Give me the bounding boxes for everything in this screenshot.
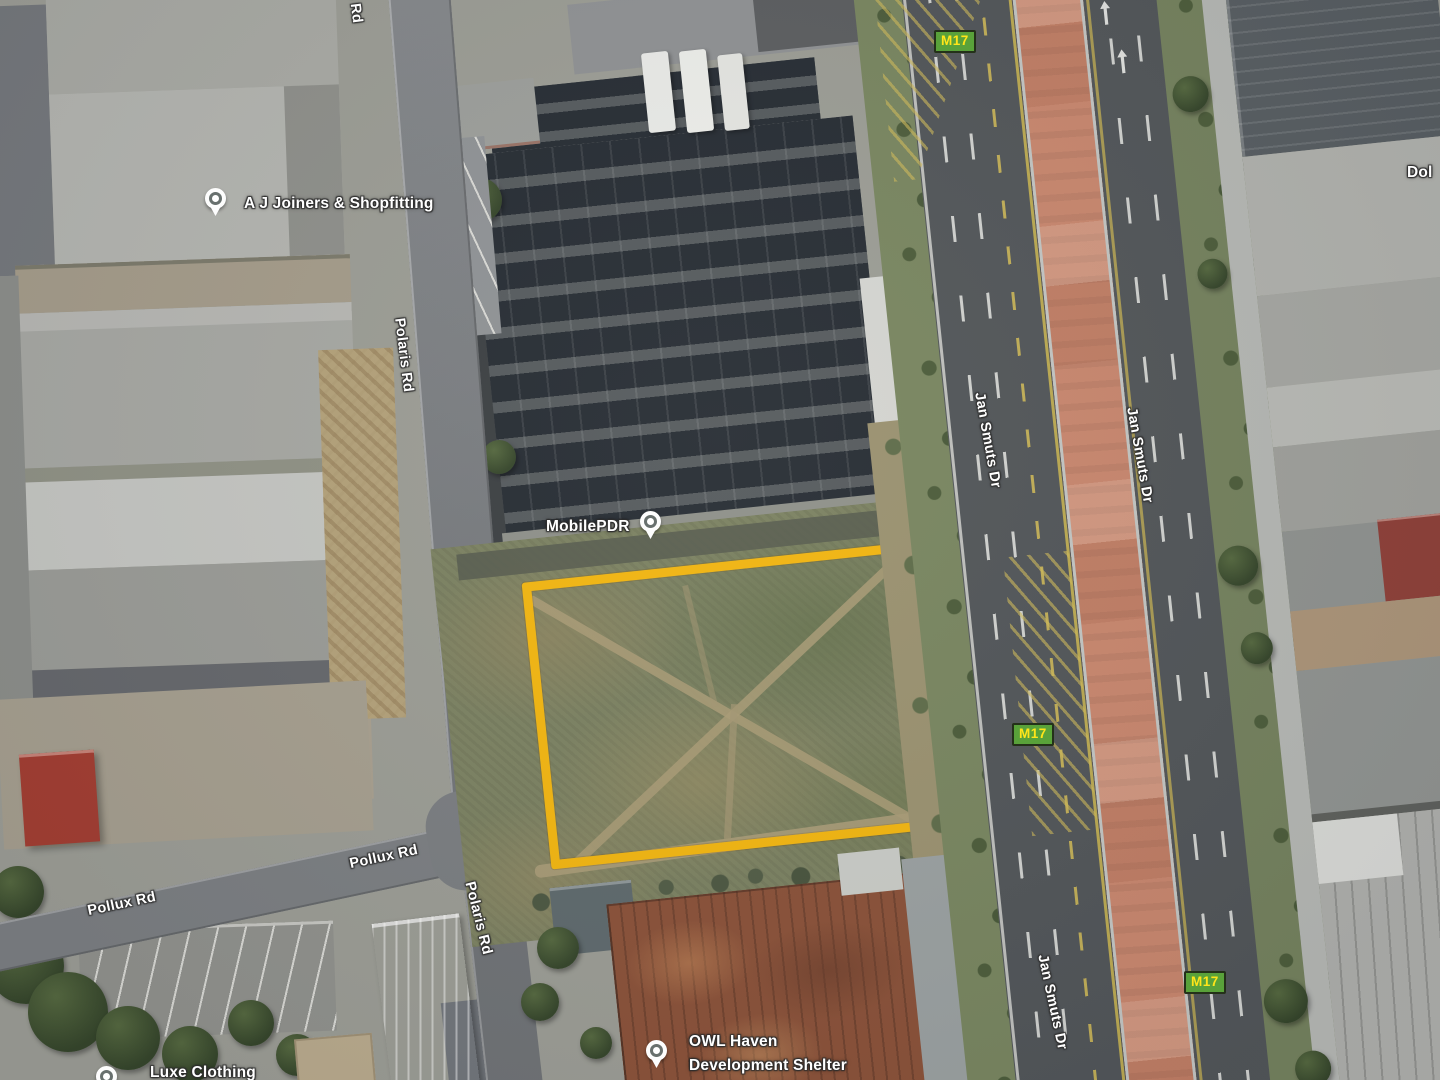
map-pin-owl-haven[interactable] [646, 1040, 667, 1061]
tree [96, 1006, 160, 1070]
warehouse-roof [284, 84, 345, 256]
map-pin-mobilepdr[interactable] [640, 511, 661, 532]
place-label-owl-haven-line2[interactable]: Development Shelter [689, 1057, 847, 1075]
warehouse-roof [23, 471, 361, 571]
tree [580, 1027, 612, 1059]
road-label-polaris-rd: Polaris Rd [391, 317, 416, 393]
map-canvas[interactable]: M17 M17 M17 Polaris Rd Polaris Rd Polari… [0, 0, 1440, 1080]
map-pin-luxe-clothing[interactable] [96, 1066, 117, 1080]
dark-modern-building [1223, 0, 1440, 157]
warehouse-roof [17, 302, 357, 469]
map-pin-aj-joiners[interactable] [205, 188, 226, 209]
place-label-mobilepdr[interactable]: MobilePDR [546, 518, 630, 536]
white-roof-section [1312, 813, 1403, 884]
red-roof-structure [1377, 508, 1440, 602]
warehouse-roof [1242, 135, 1440, 296]
pallet-yard [318, 348, 406, 720]
route-badge-m17: M17 [934, 30, 976, 53]
place-label-owl-haven-line1[interactable]: OWL Haven [689, 1033, 778, 1051]
tree [521, 983, 559, 1021]
tree [537, 927, 579, 969]
place-label-luxe-clothing[interactable]: Luxe Clothing [150, 1064, 256, 1080]
warehouse-roof [26, 559, 364, 671]
red-roof-building [19, 749, 100, 846]
route-badge-m17: M17 [1012, 723, 1054, 746]
warehouse-roof [44, 0, 338, 94]
tan-building [294, 1033, 376, 1080]
blue-roof-building [372, 913, 481, 1080]
tree [228, 1000, 274, 1046]
place-label-aj-joiners[interactable]: A J Joiners & Shopfitting [244, 195, 434, 213]
route-badge-m17: M17 [1184, 971, 1226, 994]
pavement [1296, 649, 1440, 820]
place-label-dol-partial[interactable]: Dol [1407, 164, 1433, 182]
